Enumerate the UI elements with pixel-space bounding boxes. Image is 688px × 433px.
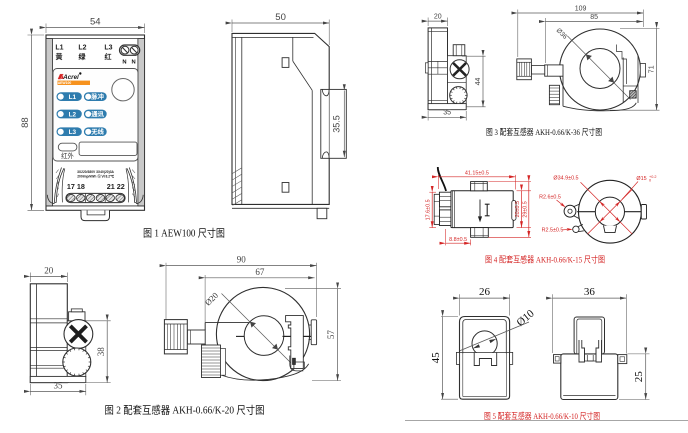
svg-text:41.15±0.5: 41.15±0.5 bbox=[465, 171, 489, 177]
svg-text:Acrel: Acrel bbox=[62, 74, 79, 81]
svg-text:N: N bbox=[132, 60, 136, 66]
svg-text:L2: L2 bbox=[78, 45, 86, 52]
svg-text:57: 57 bbox=[326, 330, 336, 340]
svg-text:35: 35 bbox=[54, 381, 64, 391]
svg-text:图 2 配套互感器 AKH-0.66/K-20 尺寸图: 图 2 配套互感器 AKH-0.66/K-20 尺寸图 bbox=[105, 403, 265, 416]
svg-text:无线: 无线 bbox=[90, 128, 104, 136]
svg-text:54: 54 bbox=[90, 17, 101, 28]
svg-text:L3: L3 bbox=[104, 45, 112, 52]
svg-text:Ø15: Ø15 bbox=[636, 176, 646, 182]
svg-text:0: 0 bbox=[649, 179, 651, 183]
svg-text:109: 109 bbox=[575, 5, 587, 12]
svg-text:35: 35 bbox=[443, 110, 451, 117]
svg-text:26: 26 bbox=[479, 286, 491, 298]
svg-text:黄: 黄 bbox=[56, 52, 63, 61]
svg-text:R2.5±0.5: R2.5±0.5 bbox=[542, 227, 564, 233]
svg-text:20: 20 bbox=[434, 13, 442, 20]
svg-text:通讯: 通讯 bbox=[91, 110, 104, 118]
svg-text:71: 71 bbox=[649, 65, 656, 73]
svg-text:25: 25 bbox=[633, 371, 645, 383]
svg-text:L1: L1 bbox=[69, 94, 77, 101]
svg-text:L2: L2 bbox=[69, 111, 77, 118]
svg-text:红外: 红外 bbox=[61, 151, 74, 160]
svg-text:脉冲: 脉冲 bbox=[90, 93, 103, 101]
svg-text:44: 44 bbox=[475, 78, 482, 86]
svg-text:21 22: 21 22 bbox=[107, 182, 125, 191]
svg-text:200imp/kWh Ⓢ Ⅵ 8.2℃: 200imp/kWh Ⓢ Ⅵ 8.2℃ bbox=[77, 173, 114, 178]
svg-text:R2.6±0.5: R2.6±0.5 bbox=[539, 195, 561, 201]
svg-text:图 4 配套互感器 AKH-0.66/K-15 尺寸图: 图 4 配套互感器 AKH-0.66/K-15 尺寸图 bbox=[485, 255, 605, 265]
svg-text:Ø34.9±0.5: Ø34.9±0.5 bbox=[553, 176, 578, 182]
svg-text:35.5: 35.5 bbox=[332, 115, 342, 133]
svg-text:29±0.5: 29±0.5 bbox=[523, 201, 529, 217]
svg-text:8.8±0.5: 8.8±0.5 bbox=[449, 237, 467, 243]
svg-text:17.6±0.5: 17.6±0.5 bbox=[426, 199, 432, 220]
svg-text:50: 50 bbox=[275, 12, 286, 23]
svg-text:图 3 配套互感器 AKH-0.66/K-36 尺寸图: 图 3 配套互感器 AKH-0.66/K-36 尺寸图 bbox=[486, 127, 602, 137]
svg-text:图 5 配套互感器 AKH-0.66/K-10 尺寸图: 图 5 配套互感器 AKH-0.66/K-10 尺寸图 bbox=[484, 411, 600, 421]
svg-text:AEW100: AEW100 bbox=[58, 81, 72, 85]
svg-text:图 1 AEW100 尺寸图: 图 1 AEW100 尺寸图 bbox=[143, 227, 225, 240]
svg-text:85: 85 bbox=[590, 14, 598, 21]
svg-text:88: 88 bbox=[20, 117, 31, 128]
svg-text:3X220/380V 3X40(20)3A: 3X220/380V 3X40(20)3A bbox=[77, 170, 114, 174]
svg-text:L1: L1 bbox=[55, 45, 63, 52]
svg-text:L3: L3 bbox=[69, 129, 77, 136]
svg-text:20: 20 bbox=[44, 265, 54, 275]
svg-text:67: 67 bbox=[255, 267, 265, 277]
svg-text:绿: 绿 bbox=[79, 52, 87, 61]
svg-text:N: N bbox=[122, 60, 126, 66]
svg-text:38: 38 bbox=[96, 347, 106, 357]
svg-text:45: 45 bbox=[430, 352, 442, 364]
svg-text:17 18: 17 18 bbox=[67, 182, 85, 191]
svg-text:20±0.5: 20±0.5 bbox=[515, 201, 521, 217]
svg-text:36: 36 bbox=[584, 286, 596, 298]
svg-text:红: 红 bbox=[105, 52, 112, 61]
svg-text:90: 90 bbox=[237, 255, 247, 265]
